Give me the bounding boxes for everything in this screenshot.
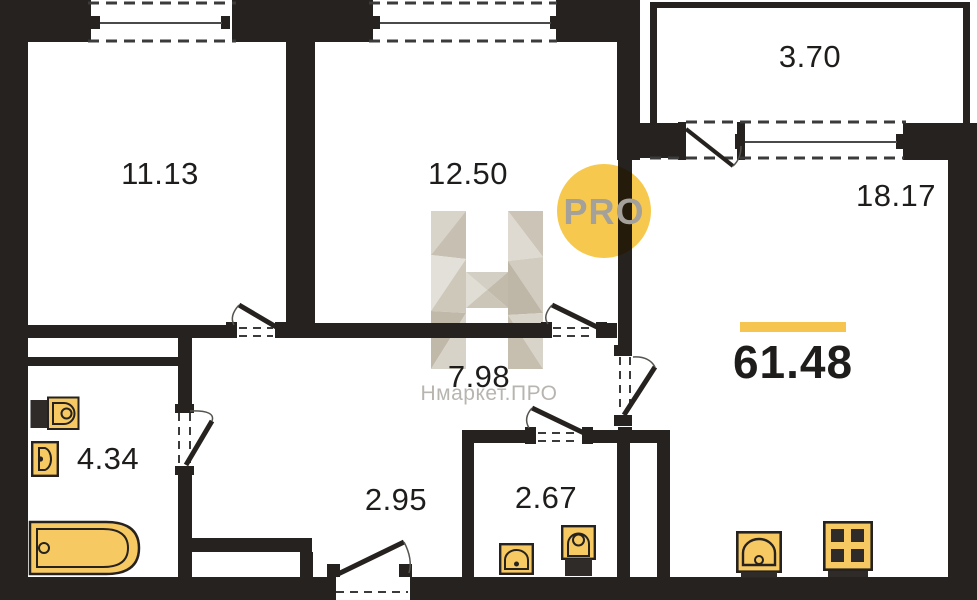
wc-sink-icon	[499, 543, 534, 575]
door-swing-arc	[232, 305, 239, 325]
living-area-label: 18.17	[856, 178, 936, 214]
door-swing-arc	[404, 542, 410, 573]
bathroom-sink-icon	[31, 441, 59, 477]
door-swing-arc	[733, 146, 741, 166]
door-leaf	[532, 408, 584, 433]
door-swing-arc	[527, 408, 532, 428]
total-area-label: 61.48	[733, 335, 853, 389]
wc-toilet-icon	[561, 525, 596, 577]
wc-area-label: 2.67	[515, 480, 577, 516]
room1-area-label: 11.13	[121, 156, 199, 192]
door-leaf	[624, 367, 655, 415]
total-area-accent-bar	[740, 322, 846, 332]
toilet-icon	[30, 396, 80, 431]
door-swing-arc	[546, 305, 552, 324]
hall-area-label: 2.95	[365, 482, 427, 518]
kitchen-sink-icon	[736, 531, 782, 578]
pro-badge-text: PRO	[563, 191, 644, 233]
door-leaf	[239, 305, 278, 328]
bathtub-icon	[28, 519, 142, 577]
stove-icon	[823, 521, 873, 578]
bathroom-area-label: 4.34	[77, 441, 139, 477]
floor-plan: 11.13 12.50 3.70 18.17 7.98 4.34 2.95 2.…	[0, 0, 977, 600]
watermark-site-text: Нмаркет.ПРО	[421, 382, 558, 406]
entry-door-leaf	[336, 542, 404, 575]
door-leaf	[552, 305, 599, 328]
door-swing-arc	[633, 357, 655, 367]
door-swing-arc	[190, 411, 213, 421]
room2-area-label: 12.50	[428, 156, 508, 192]
balcony-door-leaf	[686, 129, 733, 166]
balcony-area-label: 3.70	[779, 39, 841, 75]
doors-windows-layer	[0, 0, 977, 600]
